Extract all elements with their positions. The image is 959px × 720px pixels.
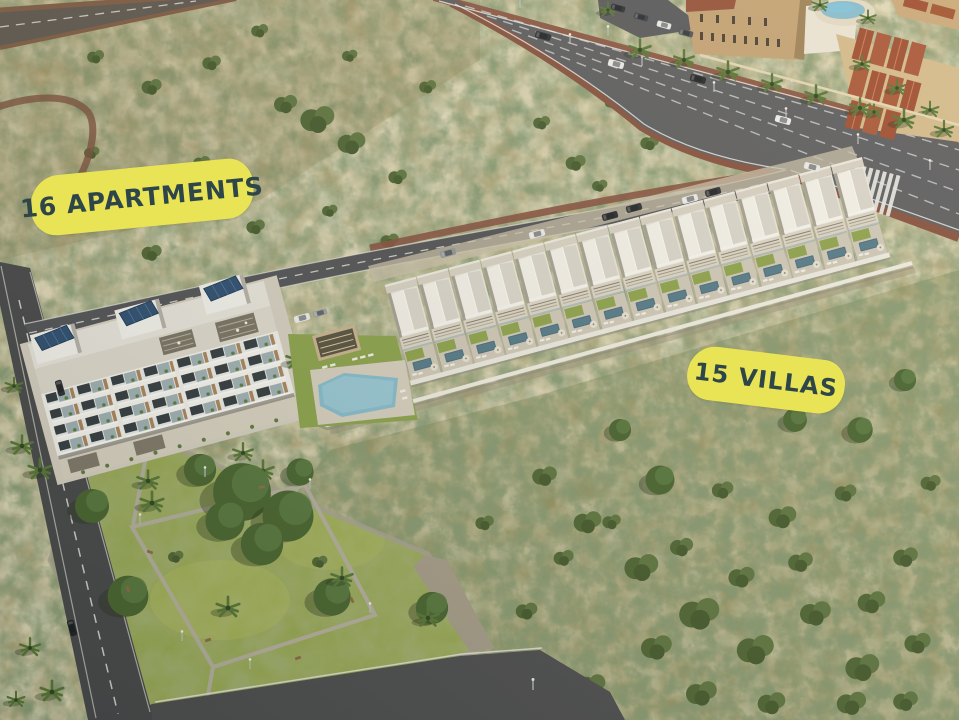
aerial-development-render: 16 APARTMENTS 15 VILLAS (0, 0, 959, 720)
